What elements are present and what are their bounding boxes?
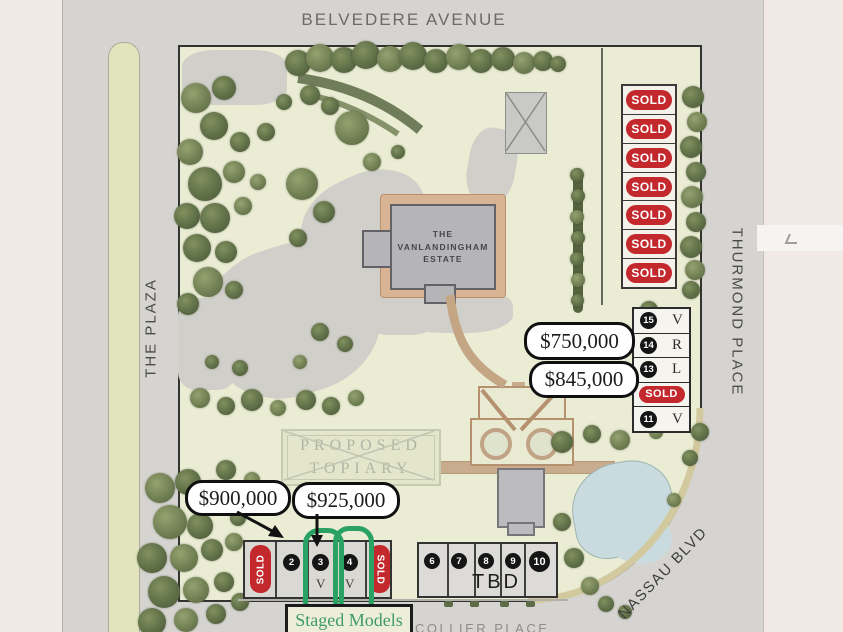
site-plan: THE VANLANDINGHAM ESTATE PROPOSED TOPIAR… [0, 0, 843, 632]
street-label-collier: COLLIER PLACE [415, 621, 549, 632]
street-label-thurmond: THURMOND PLACE [729, 228, 746, 397]
callout-arrows [0, 0, 843, 632]
street-label-plaza: THE PLAZA [143, 278, 160, 378]
street-label-belvedere: BELVEDERE AVENUE [301, 10, 506, 30]
